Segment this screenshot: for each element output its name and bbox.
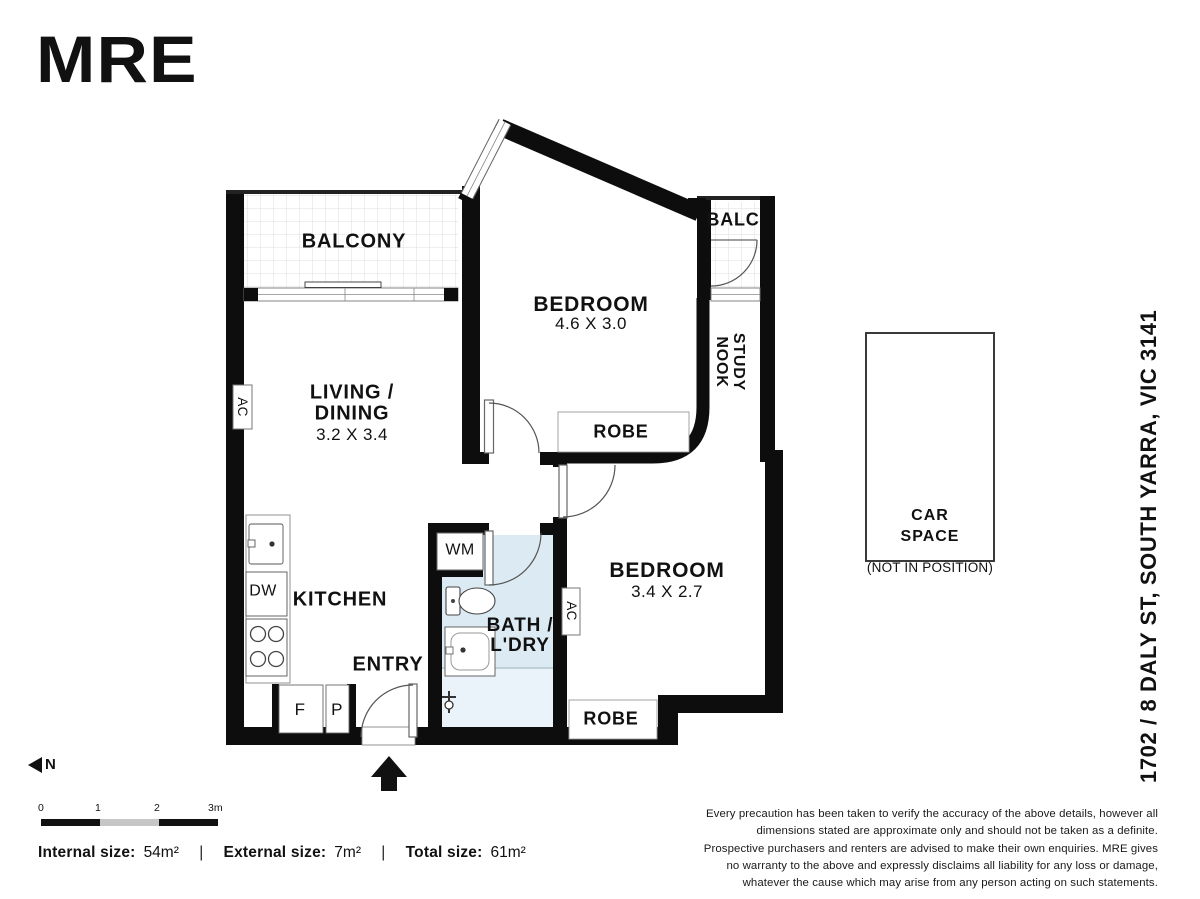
bedroom2-label: BEDROOM <box>609 560 724 582</box>
ac-living-label: AC <box>235 397 249 417</box>
scale-tick-1: 1 <box>95 802 101 814</box>
brand-logo: MRE <box>36 26 198 92</box>
living-dining-line2: DINING <box>315 404 390 425</box>
bedroom1-label: BEDROOM <box>533 294 648 316</box>
property-address: 1702 / 8 DALY ST, SOUTH YARRA, VIC 3141 <box>1136 313 1162 783</box>
separator: | <box>199 844 203 861</box>
bedroom1-dimensions: 4.6 X 3.0 <box>555 315 627 333</box>
separator: | <box>381 844 385 861</box>
balc-label: BALC <box>706 211 759 230</box>
car-space-note: (NOT IN POSITION) <box>845 560 1015 575</box>
internal-size-value: 54m² <box>144 844 179 861</box>
balcony-label: BALCONY <box>302 232 407 253</box>
washing-machine-label: WM <box>445 543 474 560</box>
car-space-line2: SPACE <box>901 527 960 548</box>
kitchen-label: KITCHEN <box>293 590 388 611</box>
internal-size-label: Internal size: <box>38 844 136 861</box>
scale-bar-segments <box>41 819 218 826</box>
total-size-value: 61m² <box>490 844 525 861</box>
ac-bedroom2-label: AC <box>564 601 578 621</box>
external-size-label: External size: <box>224 844 327 861</box>
external-size-value: 7m² <box>334 844 361 861</box>
car-space-line1: CAR <box>911 506 949 527</box>
scale-tick-2: 2 <box>154 802 160 814</box>
bath-laundry-line2: L'DRY <box>487 636 554 656</box>
scale-tick-3: 3m <box>208 802 223 814</box>
north-indicator: N <box>28 756 56 773</box>
north-arrow-icon <box>28 757 42 773</box>
sizes-row: Internal size:54m² | External size:7m² |… <box>38 844 526 862</box>
bath-laundry-label: BATH / L'DRY <box>487 616 554 656</box>
study-nook-line2: NOOK <box>712 333 729 391</box>
car-space-box: CAR SPACE <box>865 332 995 562</box>
dishwasher-label: DW <box>249 584 276 601</box>
scale-bar: 0 1 2 3m <box>38 802 223 834</box>
living-dining-line1: LIVING / <box>310 383 394 404</box>
floor-plan-page: MRE BALCONY BEDROOM 4.6 X 3.0 BALC STUDY… <box>0 0 1200 899</box>
pantry-label: P <box>331 701 343 719</box>
robe1-label: ROBE <box>593 423 648 442</box>
scale-tick-0: 0 <box>38 802 44 814</box>
robe2-label: ROBE <box>583 710 638 729</box>
bath-laundry-line1: BATH / <box>487 616 554 636</box>
angled-walls <box>464 123 703 457</box>
floor-plan-drawing <box>0 0 1200 899</box>
bedroom2-dimensions: 3.4 X 2.7 <box>631 583 703 601</box>
total-size-label: Total size: <box>406 844 483 861</box>
living-dining-dimensions: 3.2 X 3.4 <box>316 426 388 444</box>
fridge-label: F <box>295 701 306 719</box>
entry-label: ENTRY <box>352 655 423 676</box>
entry-arrow-icon <box>371 756 407 791</box>
study-nook-label: STUDY NOOK <box>712 333 746 391</box>
study-nook-line1: STUDY <box>729 333 746 391</box>
disclaimer-text: Every precaution has been taken to verif… <box>696 806 1158 893</box>
north-label: N <box>45 756 56 773</box>
